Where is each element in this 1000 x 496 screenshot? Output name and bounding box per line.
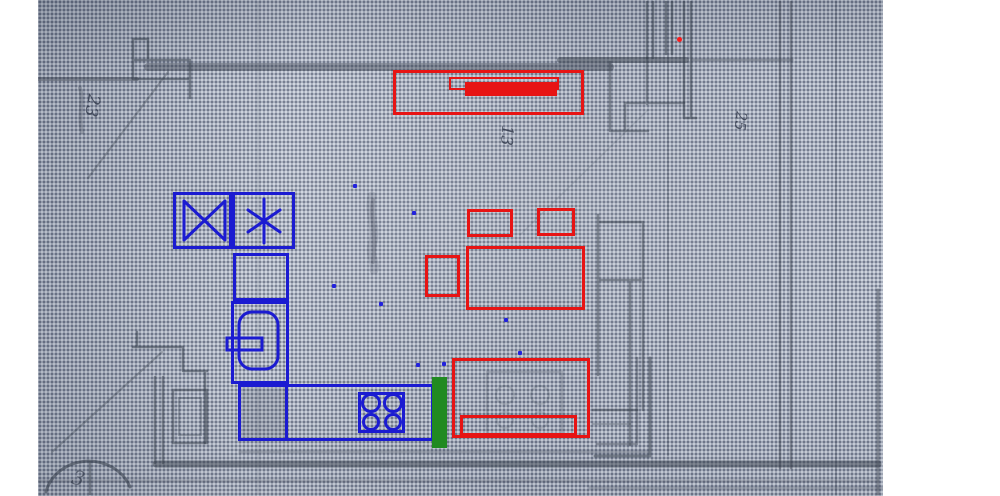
point-marker — [518, 351, 522, 355]
annotated-floorplan-image: 23 13 25 3 — [0, 0, 1000, 496]
point-marker — [416, 363, 420, 367]
bbox-sink-cabinet — [238, 384, 288, 441]
handwritten-number: 13 — [497, 125, 517, 147]
bbox-small-left — [467, 209, 513, 237]
window-highlight-bar — [465, 82, 557, 96]
red-dot-marker — [677, 37, 682, 42]
bbox-stove-front — [460, 415, 577, 436]
point-marker — [379, 302, 383, 306]
handwritten-number: 25 — [731, 111, 751, 132]
bbox-small-right — [537, 208, 575, 236]
annotation-overlay — [0, 0, 1000, 496]
point-marker — [442, 362, 446, 366]
handwritten-number: 23 — [80, 93, 104, 120]
bbox-table — [466, 246, 585, 310]
bbox-boiler — [231, 301, 289, 384]
bbox-freezer-cell — [232, 192, 295, 249]
point-marker — [412, 211, 416, 215]
bbox-upper-cabinet — [233, 253, 289, 301]
door-marker-bar — [432, 377, 447, 448]
point-marker — [504, 318, 508, 322]
point-marker — [332, 284, 336, 288]
point-marker — [353, 184, 357, 188]
bbox-fridge-cell — [173, 192, 232, 249]
bbox-chair — [425, 255, 460, 297]
bbox-cooktop-symbol — [358, 392, 405, 433]
